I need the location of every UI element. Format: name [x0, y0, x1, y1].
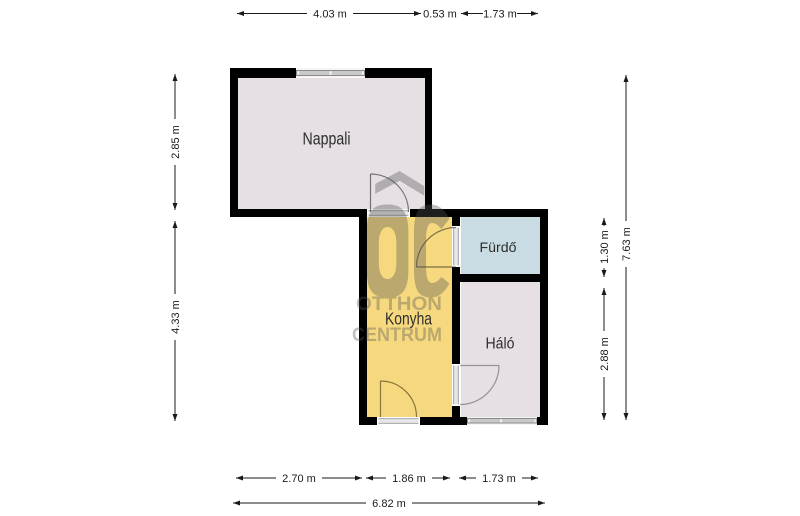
svg-text:1.73 m: 1.73 m: [483, 9, 517, 21]
svg-text:2.70 m: 2.70 m: [282, 473, 316, 485]
svg-text:7.63 m: 7.63 m: [621, 227, 633, 261]
svg-text:CENTRUM: CENTRUM: [352, 324, 442, 346]
svg-text:0.53 m: 0.53 m: [423, 9, 457, 21]
svg-text:6.82 m: 6.82 m: [372, 498, 406, 510]
svg-text:Fürdő: Fürdő: [480, 239, 517, 255]
svg-text:4.33 m: 4.33 m: [170, 300, 182, 334]
svg-text:1.86 m: 1.86 m: [392, 473, 426, 485]
svg-text:1.30 m: 1.30 m: [599, 230, 611, 264]
svg-text:4.03 m: 4.03 m: [313, 9, 347, 21]
svg-text:1.73 m: 1.73 m: [482, 473, 516, 485]
svg-text:2.85 m: 2.85 m: [170, 125, 182, 159]
svg-text:Nappali: Nappali: [303, 129, 351, 149]
svg-text:2.88 m: 2.88 m: [599, 337, 611, 371]
svg-text:Háló: Háló: [486, 336, 515, 353]
svg-text:OTTHON: OTTHON: [356, 293, 442, 315]
